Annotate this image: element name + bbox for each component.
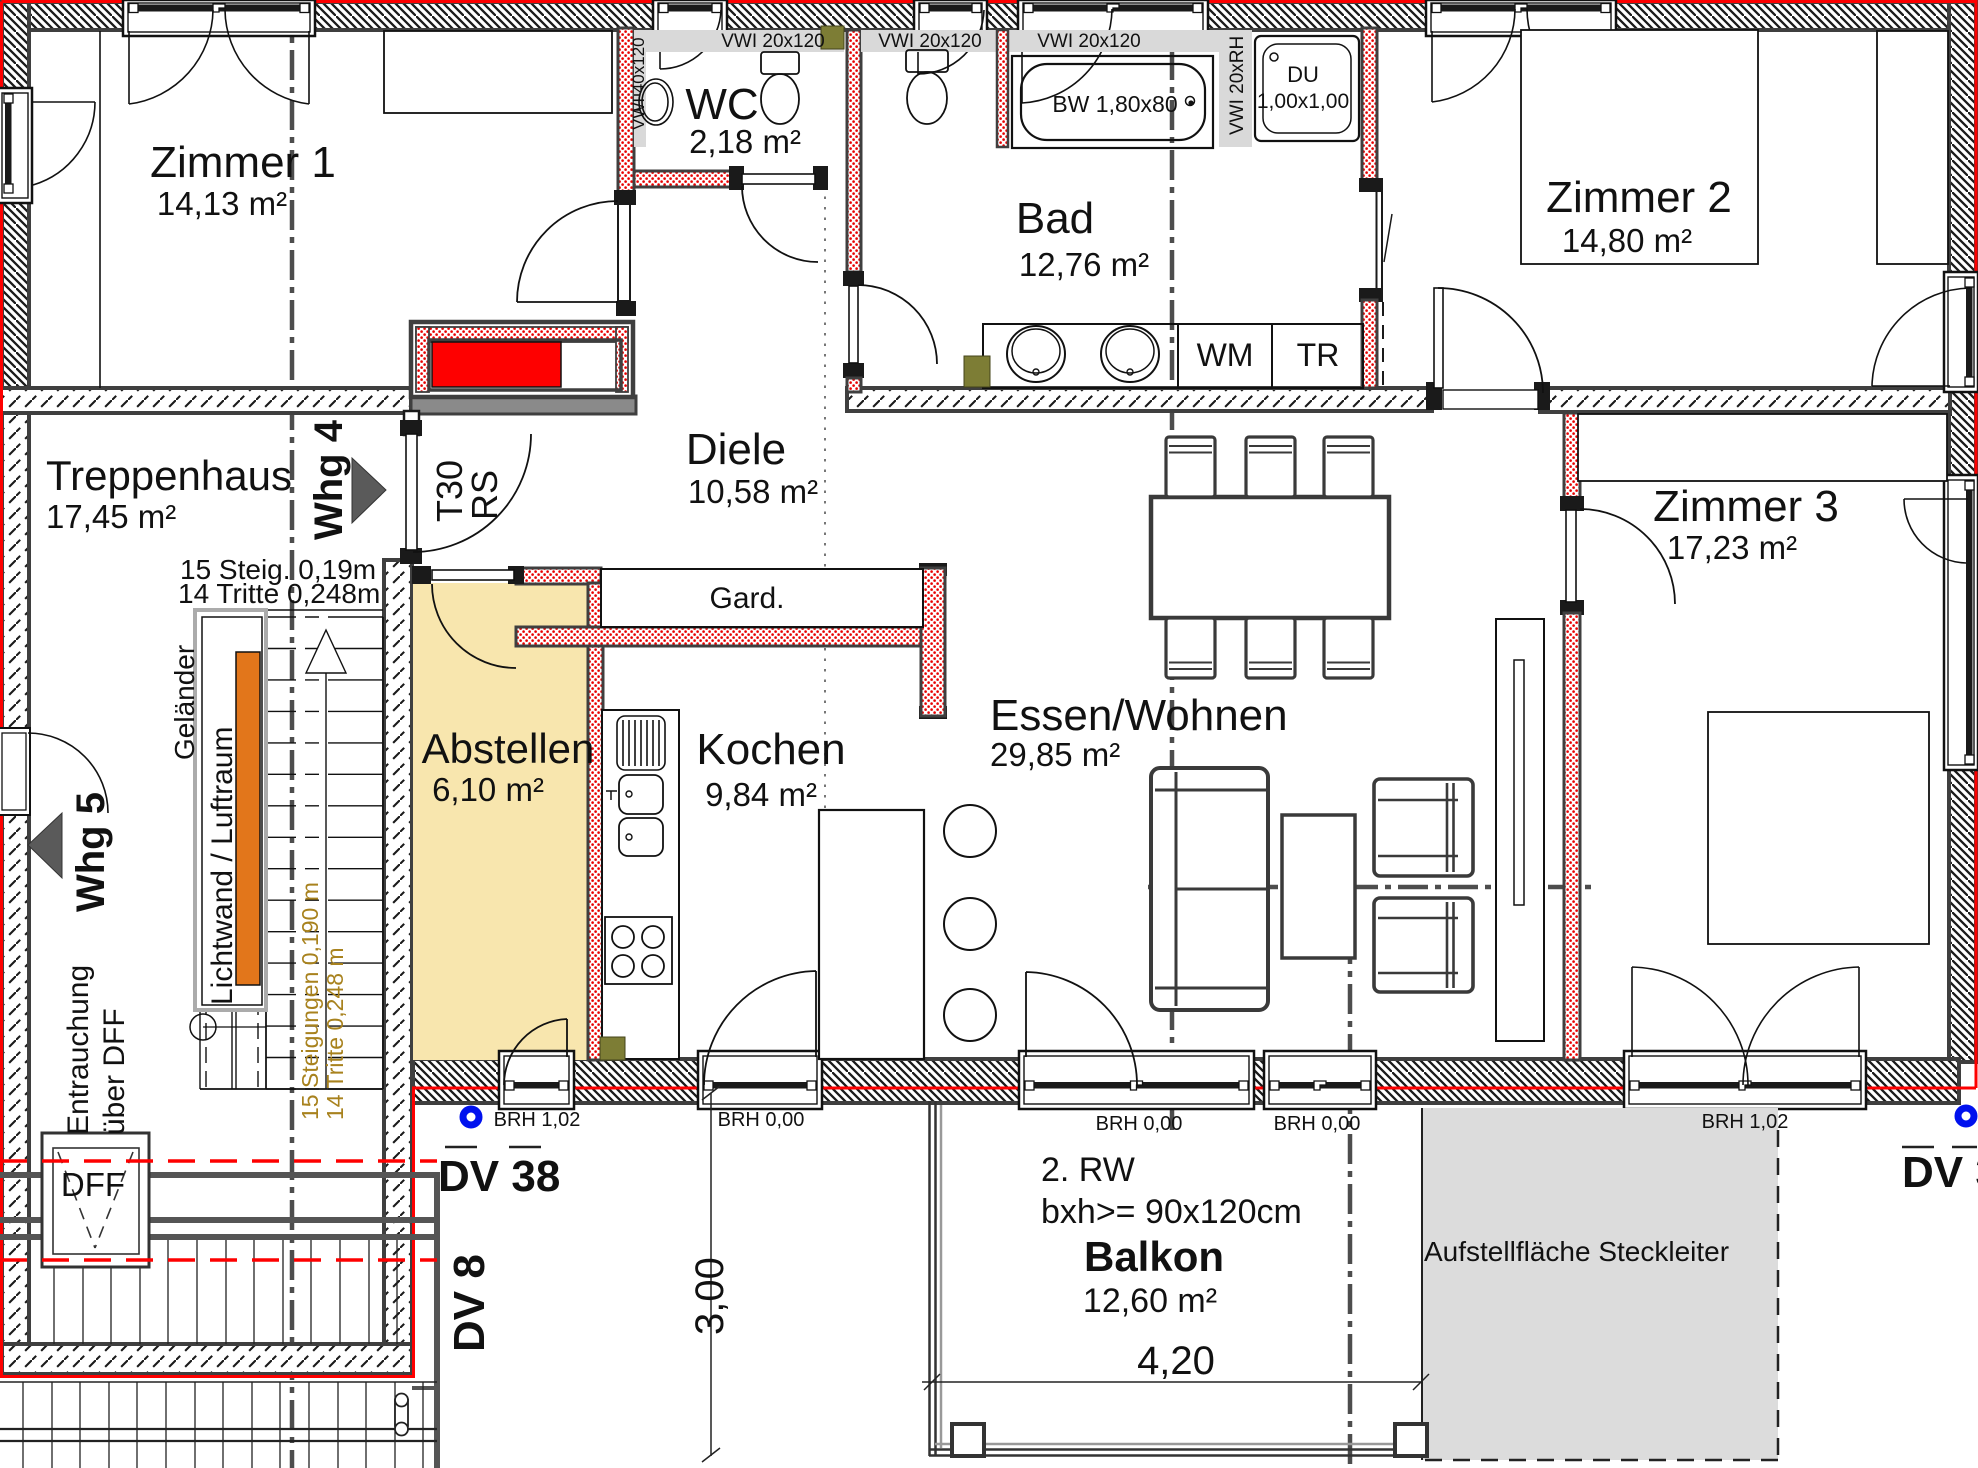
svg-text:VWI 20x120: VWI 20x120 xyxy=(878,31,982,52)
svg-text:Kochen: Kochen xyxy=(696,725,845,774)
svg-text:14 Tritte 0,248m: 14 Tritte 0,248m xyxy=(178,578,380,609)
svg-text:Gard.: Gard. xyxy=(709,582,784,615)
svg-text:Zimmer 3: Zimmer 3 xyxy=(1653,482,1839,531)
svg-text:DFF: DFF xyxy=(61,1166,125,1203)
svg-text:2. RW: 2. RW xyxy=(1041,1151,1135,1189)
svg-text:BRH 0,00: BRH 0,00 xyxy=(718,1109,805,1131)
svg-text:Essen/Wohnen: Essen/Wohnen xyxy=(990,691,1288,740)
svg-text:Geländer: Geländer xyxy=(169,645,200,760)
svg-text:TR: TR xyxy=(1297,337,1340,373)
svg-text:12,60 m²: 12,60 m² xyxy=(1083,1282,1217,1320)
svg-text:29,85 m²: 29,85 m² xyxy=(990,736,1120,773)
svg-text:VWI 20xRH: VWI 20xRH xyxy=(1227,36,1248,135)
svg-text:Whg 5: Whg 5 xyxy=(69,792,113,912)
svg-text:14,80 m²: 14,80 m² xyxy=(1562,222,1692,259)
svg-text:17,45 m²: 17,45 m² xyxy=(46,498,176,535)
svg-text:Aufstellfläche Steckleiter: Aufstellfläche Steckleiter xyxy=(1424,1236,1729,1267)
svg-text:14,13 m²: 14,13 m² xyxy=(157,185,287,222)
svg-text:1,00x1,00: 1,00x1,00 xyxy=(1257,90,1349,113)
svg-text:Entrauchung: Entrauchung xyxy=(62,965,95,1135)
svg-text:6,10 m²: 6,10 m² xyxy=(432,771,544,808)
svg-text:15 Steigungen 0,190 m: 15 Steigungen 0,190 m xyxy=(297,882,323,1120)
svg-text:2,18 m²: 2,18 m² xyxy=(689,123,801,160)
svg-text:DV 38: DV 38 xyxy=(438,1152,560,1201)
svg-text:DU: DU xyxy=(1287,62,1319,87)
svg-text:VWI 40x120: VWI 40x120 xyxy=(629,37,648,130)
svg-text:Bad: Bad xyxy=(1016,194,1094,243)
svg-text:BRH 0,00: BRH 0,00 xyxy=(1096,1113,1183,1135)
svg-text:Lichtwand / Luftraum: Lichtwand / Luftraum xyxy=(206,727,239,1005)
svg-text:Zimmer 2: Zimmer 2 xyxy=(1546,173,1732,222)
svg-text:BW 1,80x80: BW 1,80x80 xyxy=(1052,91,1177,117)
svg-text:über DFF: über DFF xyxy=(98,1008,131,1135)
svg-text:3,00: 3,00 xyxy=(688,1257,732,1335)
svg-text:VWI 20x120: VWI 20x120 xyxy=(1037,31,1141,52)
svg-text:12,76 m²: 12,76 m² xyxy=(1019,246,1149,283)
svg-text:Diele: Diele xyxy=(686,425,786,474)
svg-text:BRH 0,00: BRH 0,00 xyxy=(1274,1113,1361,1135)
svg-text:Whg 4: Whg 4 xyxy=(307,419,351,540)
svg-text:WM: WM xyxy=(1197,337,1254,373)
svg-text:17,23 m²: 17,23 m² xyxy=(1667,529,1797,566)
svg-text:Zimmer 1: Zimmer 1 xyxy=(150,138,336,187)
svg-text:10,58 m²: 10,58 m² xyxy=(688,473,818,510)
svg-text:Treppenhaus: Treppenhaus xyxy=(46,452,292,499)
svg-text:4,20: 4,20 xyxy=(1137,1339,1215,1383)
svg-text:VWI 20x120: VWI 20x120 xyxy=(721,31,825,52)
svg-text:Balkon: Balkon xyxy=(1084,1233,1224,1280)
svg-text:14 Tritte 0,248 m: 14 Tritte 0,248 m xyxy=(322,947,348,1120)
svg-text:DV 8: DV 8 xyxy=(445,1254,494,1352)
svg-text:Abstellen: Abstellen xyxy=(422,725,595,772)
svg-text:DV 38: DV 38 xyxy=(1902,1148,1978,1197)
svg-text:bxh>= 90x120cm: bxh>= 90x120cm xyxy=(1041,1193,1302,1231)
svg-text:BRH 1,02: BRH 1,02 xyxy=(1702,1111,1789,1133)
svg-text:BRH 1,02: BRH 1,02 xyxy=(494,1109,581,1131)
svg-text:9,84 m²: 9,84 m² xyxy=(705,776,817,813)
svg-text:RS: RS xyxy=(464,470,505,520)
svg-text:WC: WC xyxy=(685,80,758,129)
